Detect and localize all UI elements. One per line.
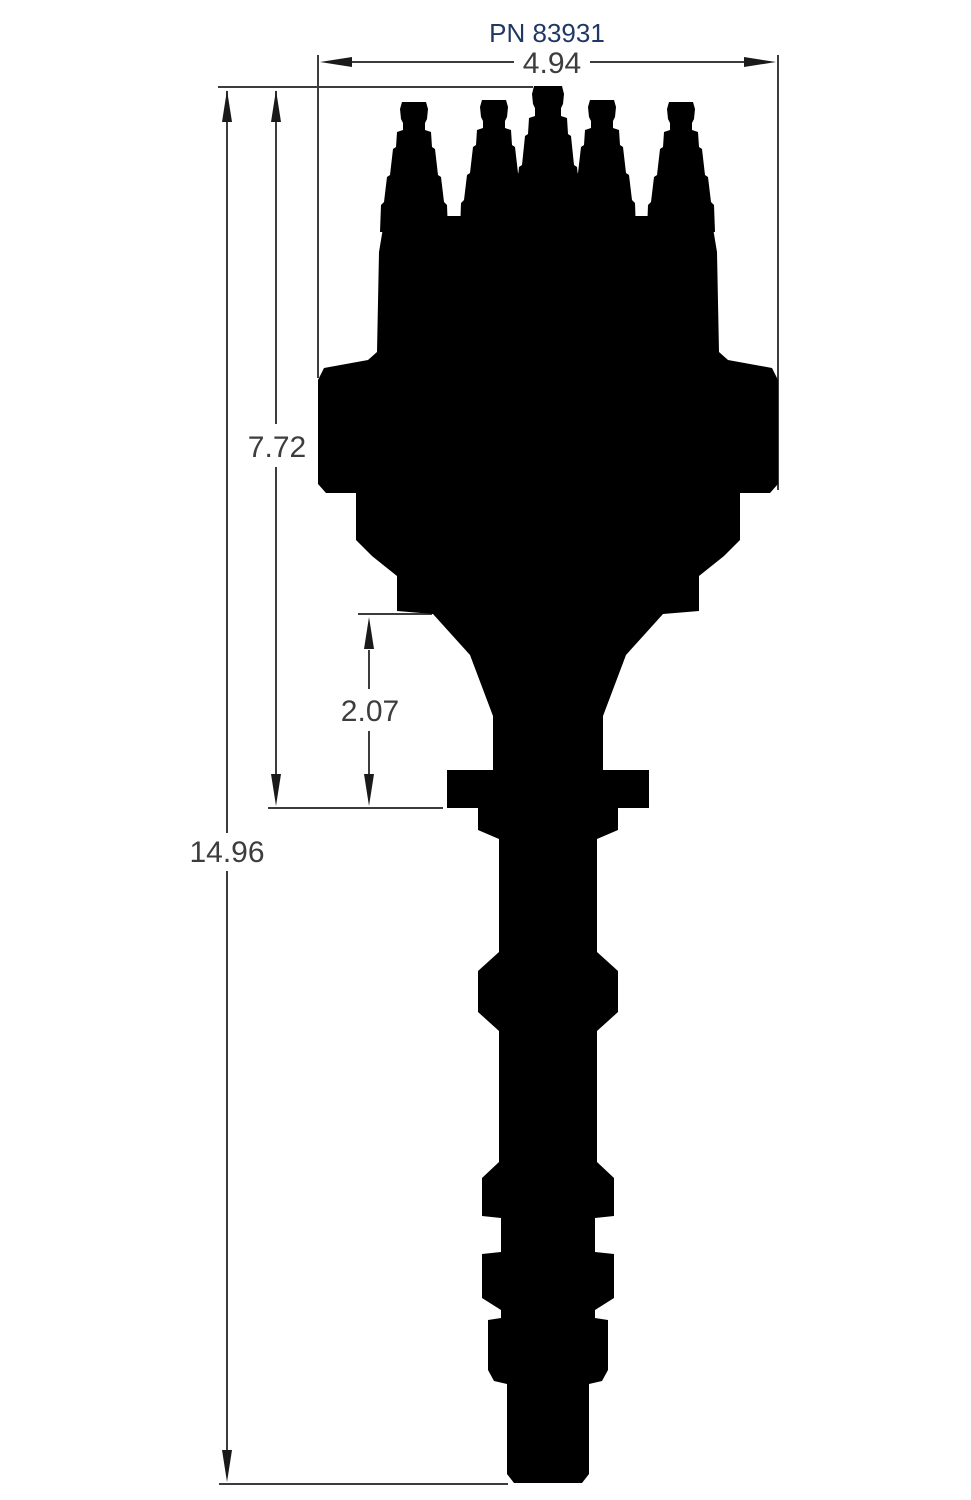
dim-cap-height-label: 7.72 [248, 431, 306, 464]
dim-arrow-flange-offset-down [364, 774, 374, 806]
dim-arrow-width-left [320, 57, 352, 67]
dim-overall-height-label: 14.96 [189, 836, 264, 869]
dim-arrow-overall-up [222, 90, 232, 122]
dim-arrow-flange-offset-up [364, 617, 374, 649]
dim-arrow-cap-height-down [271, 774, 281, 806]
dim-flange-offset-label: 2.07 [341, 695, 399, 728]
dim-arrow-overall-down [222, 1450, 232, 1482]
dim-arrow-cap-height-up [271, 90, 281, 122]
part-number-label: PN 83931 [489, 18, 605, 48]
technical-drawing-page: PN 83931 4.94 7.72 2.07 14.96 [0, 0, 971, 1500]
distributor-dimension-drawing: PN 83931 4.94 7.72 2.07 14.96 [0, 0, 971, 1500]
distributor-body [318, 86, 778, 1483]
dim-cap-width-label: 4.94 [523, 47, 581, 80]
dim-arrow-width-right [744, 57, 776, 67]
distributor-silhouette [318, 86, 778, 1483]
